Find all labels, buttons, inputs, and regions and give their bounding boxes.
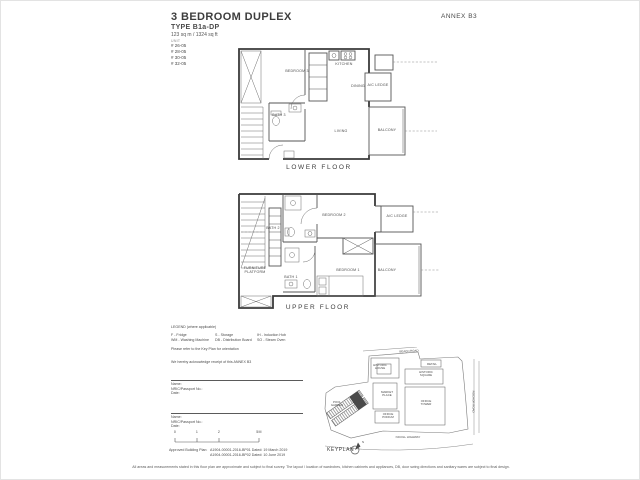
signature-block: Name: NRIC/Passport No.: Date: [171,415,203,429]
legend-item: DB - Distribution Board [215,338,257,343]
annex-label: ANNEX B3 [441,13,477,20]
building-label-retail: RETAIL [422,363,442,366]
floorplan-page: ANNEX B3 3 BEDROOM DUPLEX TYPE B1a-DP 12… [0,0,640,480]
acknowledgement-text: We hereby acknowledge receipt of this AN… [171,360,251,365]
lower-dashed-leaders [393,62,437,131]
room-label-bath1: BATH 1 [271,275,311,279]
room-label-furniture-platform: FURNITURE PLATFORM [241,266,269,274]
road-label-right: ROCHOR ROAD [471,382,474,422]
building-label-historic-square: HISTORIC SQUARE [418,371,434,378]
shower-icon [285,248,299,262]
unit-list: # 26-05 # 28-05 # 30-05 # 32-05 [171,43,186,67]
upper-floor-plan [225,184,441,312]
building-label-market-place: MARKET PLACE [379,391,395,398]
unit-item: # 32-05 [171,61,186,67]
room-label-balcony-upper: BALCONY [367,268,407,272]
room-label-bath2: BATH 2 [253,226,293,230]
page-title: 3 BEDROOM DUPLEX [171,11,292,23]
legend-item: SO - Steam Oven [257,338,307,343]
sink-icon [305,230,315,237]
scale-tick: 1 [192,430,202,434]
upper-structures [269,194,421,296]
building-label-office-podium: OFFICE PODIUM [380,413,396,420]
area-label-pool-garden: POOL GARDEN [329,401,345,408]
signature-date-label: Date: [171,424,203,429]
signature-line [171,413,303,414]
disclaimer-text: All areas and measurements stated in thi… [69,465,573,469]
room-label-bedroom2: BEDROOM 2 [314,213,354,217]
db-box-icon [284,151,294,158]
approval-line: A1904-00001-2016-BP01 Dated: 19 March 20… [210,448,287,453]
upper-outer-walls [239,194,375,308]
scale-tick: 2 [214,430,224,434]
sink-icon [285,280,297,288]
shower-icon [285,196,301,210]
scale-tick: 0 [170,430,180,434]
lower-fixtures [241,51,352,159]
signature-line [171,380,303,381]
north-label: N [359,441,367,444]
toilet-icon [273,117,280,126]
scale-bar [173,434,265,444]
room-label-balcony-lower: BALCONY [367,128,407,132]
building-label-historic-house: HISTORIC HOUSE [372,364,388,371]
approval-line: A1904-00001-2016-BP02 Dated: 10 June 201… [210,453,285,458]
steam-oven-icon [332,54,336,58]
unit-type-label: TYPE B1a-DP [171,24,219,31]
scale-tick: 5M [253,430,265,434]
upper-floor-caption: UPPER FLOOR [258,304,378,311]
legend-grid: F - Fridge S - Storage IH - Induction Ho… [171,333,307,343]
orientation-note: Please refer to the Key Plan for orienta… [171,347,239,352]
room-label-bedroom1: BEDROOM 1 [328,268,368,272]
signature-date-label: Date: [171,391,203,396]
pool-garden-blocks [326,390,368,426]
building-label-office-tower: OFFICE TOWER [418,400,434,407]
room-label-ac-ledge-upper: A/C LEDGE [377,214,417,218]
room-label-living: LIVING [321,129,361,133]
room-label-bedroom3: BEDROOM 3 [277,69,317,73]
room-label-bath3: BATH 3 [259,113,299,117]
hob-icon [344,53,347,56]
room-label-ac-ledge-lower: A/C LEDGE [358,83,398,87]
door-arc-icon [303,250,315,262]
bed-icon [317,276,363,296]
keyplan-caption: KEYPLAN [327,447,354,453]
room-label-kitchen: KITCHEN [324,62,364,66]
keyplan-map [321,347,509,461]
lower-floor-caption: LOWER FLOOR [259,164,379,171]
approval-label: Approved Building Plan: [169,448,207,453]
door-arc-icon [269,145,283,159]
signature-block: Name: NRIC/Passport No.: Date: [171,382,203,396]
legend-item: WM - Washing Machine [171,338,215,343]
road-label-nicoll-highway: NICOLL HIGHWAY [388,436,428,439]
legend-title: LEGEND (where applicable) [171,325,216,330]
area-label: 123 sq m / 1324 sq ft [171,32,218,38]
upper-dashed-leaders [241,212,439,270]
toilet-icon [304,280,311,289]
